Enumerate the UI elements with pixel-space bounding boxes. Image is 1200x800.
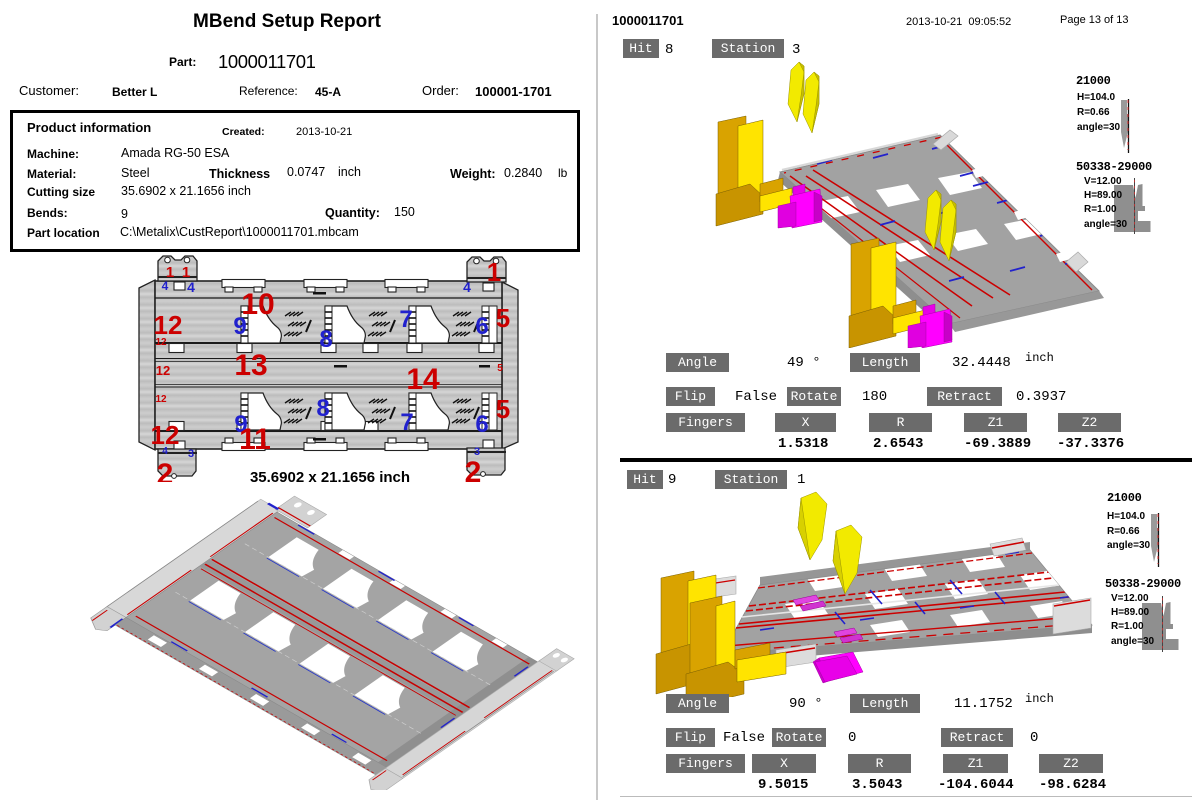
svg-text:12: 12 [155, 337, 167, 348]
svg-text:13: 13 [234, 349, 267, 382]
svg-text:6: 6 [475, 411, 488, 438]
svg-text:12: 12 [156, 363, 170, 378]
svg-text:8: 8 [316, 395, 329, 422]
svg-text:1: 1 [487, 257, 501, 287]
svg-text:12: 12 [154, 310, 183, 340]
svg-text:4: 4 [187, 279, 195, 295]
svg-text:3: 3 [188, 448, 194, 460]
svg-text:7: 7 [400, 409, 413, 436]
svg-text:12: 12 [155, 394, 167, 405]
svg-text:6: 6 [475, 313, 488, 340]
svg-text:5: 5 [497, 363, 503, 374]
svg-text:14: 14 [406, 363, 440, 396]
svg-text:5: 5 [496, 394, 510, 424]
svg-text:4: 4 [162, 279, 169, 293]
svg-text:4: 4 [162, 446, 168, 457]
svg-text:11: 11 [239, 423, 271, 456]
svg-text:7: 7 [399, 306, 412, 333]
svg-text:9: 9 [233, 313, 246, 340]
svg-text:8: 8 [319, 326, 332, 353]
svg-text:4: 4 [463, 279, 471, 295]
svg-text:5: 5 [496, 303, 510, 333]
